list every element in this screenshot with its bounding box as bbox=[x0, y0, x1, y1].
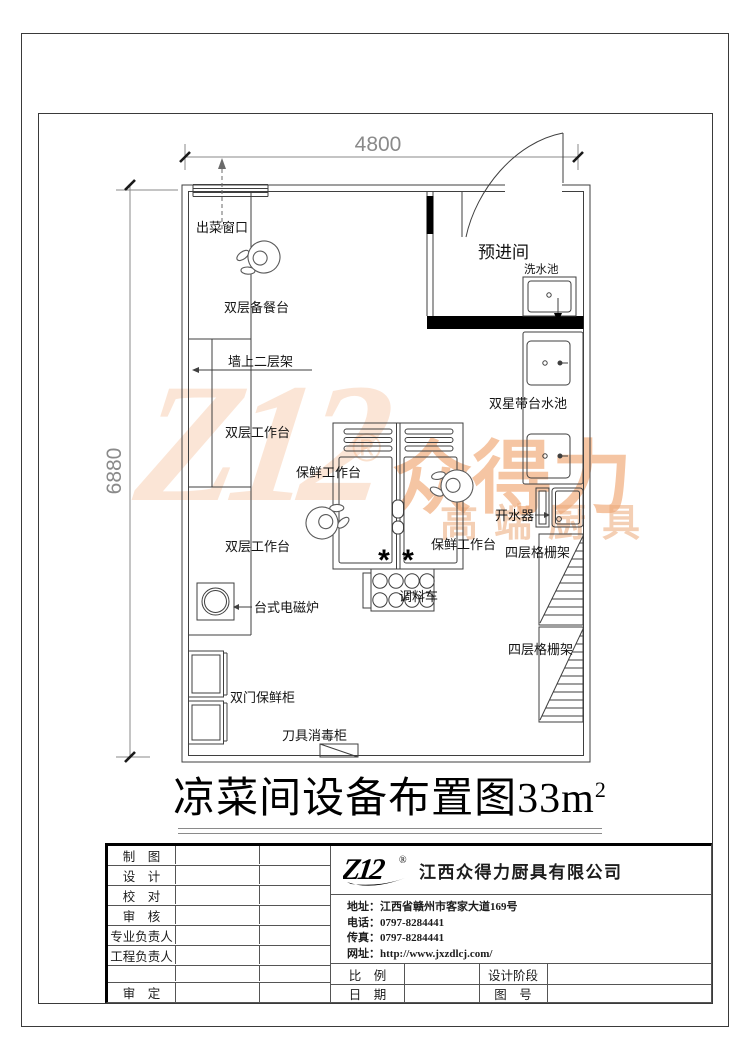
label-water-boiler: 开水器 bbox=[495, 508, 534, 523]
row-extra-cell bbox=[259, 946, 330, 964]
title-block-row-project-lead: 工程负责人 bbox=[108, 946, 330, 966]
row-extra-cell bbox=[259, 886, 330, 904]
drawing-title: 凉菜间设备布置图33m2 bbox=[60, 776, 720, 822]
title-block: 制 图 设 计 校 对 审 核 专业负责人 工程负责人 审 定 Z12 ® 江西… bbox=[105, 843, 712, 1003]
pre-entry-room bbox=[427, 133, 584, 329]
label-wash-sink: 洗水池 bbox=[524, 263, 559, 276]
water-boiler bbox=[535, 488, 583, 527]
fields-row-1: 比 例 设计阶段 bbox=[331, 964, 711, 985]
label-fresh-worktable-1: 保鲜工作台 bbox=[296, 465, 361, 480]
fields-row-2: 日 期 图 号 bbox=[331, 985, 711, 1002]
dimension-lines bbox=[116, 144, 583, 762]
label-spice-cart: 调料车 bbox=[399, 589, 438, 604]
label-star-sink: 双星带台水池 bbox=[489, 396, 567, 411]
svg-text:®: ® bbox=[399, 855, 407, 866]
row-value-cell bbox=[175, 886, 260, 904]
title-underline-2 bbox=[178, 833, 602, 834]
title-block-row-discipline-lead: 专业负责人 bbox=[108, 926, 330, 946]
dimension-height-value: 6880 bbox=[103, 448, 126, 495]
island-star-mark-1: * bbox=[378, 544, 390, 577]
title-block-row-checker: 校 对 bbox=[108, 886, 330, 906]
row-extra-cell bbox=[259, 926, 330, 944]
row-extra-cell bbox=[259, 866, 330, 884]
label-wall-shelf: 墙上二层架 bbox=[228, 354, 293, 369]
label-pre-entry-room: 预进间 bbox=[478, 243, 529, 262]
row-label: 校 对 bbox=[108, 886, 176, 904]
label-grid-shelf-2: 四层格栅架 bbox=[508, 642, 573, 657]
title-block-row-designer: 设 计 bbox=[108, 866, 330, 886]
label-fridge: 双门保鲜柜 bbox=[230, 690, 295, 705]
title-block-company-section: Z12 ® 江西众得力厨具有限公司 地址：江西省赣州市客家大道169号 电话：0… bbox=[330, 846, 711, 1002]
drawing-title-text: 凉菜间设备布置图33m bbox=[173, 776, 595, 822]
dimension-width-value: 4800 bbox=[355, 133, 402, 156]
date-label: 日 期 bbox=[331, 985, 405, 1002]
company-logo-icon: Z12 ® bbox=[343, 852, 413, 888]
contact-address: 地址：江西省赣州市客家大道169号 bbox=[347, 900, 711, 916]
island-star-mark-2: * bbox=[402, 544, 414, 577]
scale-value-cell bbox=[404, 964, 480, 984]
label-serving-window: 出菜窗口 bbox=[196, 220, 248, 235]
label-work-table-1: 双层工作台 bbox=[225, 425, 290, 440]
title-underline-1 bbox=[178, 828, 602, 829]
row-label: 审 定 bbox=[108, 983, 176, 1002]
row-value-cell bbox=[175, 866, 260, 884]
title-block-row-approver: 审 定 bbox=[108, 983, 330, 1003]
contact-website: 网址：http://www.jxzdlcj.com/ bbox=[347, 947, 711, 963]
row-label: 工程负责人 bbox=[108, 946, 176, 964]
company-row: Z12 ® 江西众得力厨具有限公司 bbox=[331, 846, 711, 895]
row-extra-cell bbox=[259, 966, 330, 981]
row-label: 设 计 bbox=[108, 866, 176, 884]
drawing-title-superscript: 2 bbox=[595, 777, 607, 802]
row-extra-cell bbox=[259, 846, 330, 864]
stage-label: 设计阶段 bbox=[479, 964, 548, 984]
title-block-row-blank bbox=[108, 966, 330, 983]
row-extra-cell bbox=[259, 983, 330, 1002]
row-value-cell bbox=[175, 906, 260, 924]
wash-sink bbox=[523, 277, 576, 322]
label-fresh-worktable-2: 保鲜工作台 bbox=[431, 537, 496, 552]
row-label: 专业负责人 bbox=[108, 926, 176, 944]
stage-value-cell bbox=[547, 964, 711, 984]
row-value-cell bbox=[175, 926, 260, 944]
label-knife-cabinet: 刀具消毒柜 bbox=[282, 728, 347, 743]
drawing-no-label: 图 号 bbox=[479, 985, 548, 1002]
induction-cooker bbox=[197, 583, 252, 620]
label-prep-counter: 双层备餐台 bbox=[224, 300, 289, 315]
drawing-no-value-cell bbox=[547, 985, 711, 1002]
label-grid-shelf-1: 四层格栅架 bbox=[505, 545, 570, 560]
row-extra-cell bbox=[259, 906, 330, 924]
row-value-cell bbox=[175, 846, 260, 864]
scale-label: 比 例 bbox=[331, 964, 405, 984]
label-work-table-2: 双层工作台 bbox=[225, 539, 290, 554]
company-contact-block: 地址：江西省赣州市客家大道169号 电话：0797-8284441 传真：079… bbox=[331, 895, 711, 964]
row-label bbox=[108, 966, 176, 981]
row-value-cell bbox=[175, 946, 260, 964]
title-block-row-drafter: 制 图 bbox=[108, 846, 330, 866]
label-induction-cooker: 台式电磁炉 bbox=[254, 600, 319, 615]
row-label: 审 核 bbox=[108, 906, 176, 924]
company-name: 江西众得力厨具有限公司 bbox=[419, 858, 623, 883]
row-value-cell bbox=[175, 966, 260, 981]
contact-phone: 电话：0797-8284441 bbox=[347, 916, 711, 932]
title-block-row-reviewer: 审 核 bbox=[108, 906, 330, 926]
drawing-sheet: { "plan": { "dims": { "width": "4800", "… bbox=[0, 0, 750, 1060]
date-value-cell bbox=[404, 985, 480, 1002]
contact-fax: 传真：0797-8284441 bbox=[347, 931, 711, 947]
row-value-cell bbox=[175, 983, 260, 1002]
floor-plan: 4800 6880 出菜窗口 预进间 洗水池 bbox=[0, 0, 750, 840]
double-door-fridge bbox=[189, 651, 228, 744]
svg-text:Z12: Z12 bbox=[343, 852, 387, 886]
staff-figures bbox=[233, 237, 476, 543]
row-label: 制 图 bbox=[108, 846, 176, 864]
